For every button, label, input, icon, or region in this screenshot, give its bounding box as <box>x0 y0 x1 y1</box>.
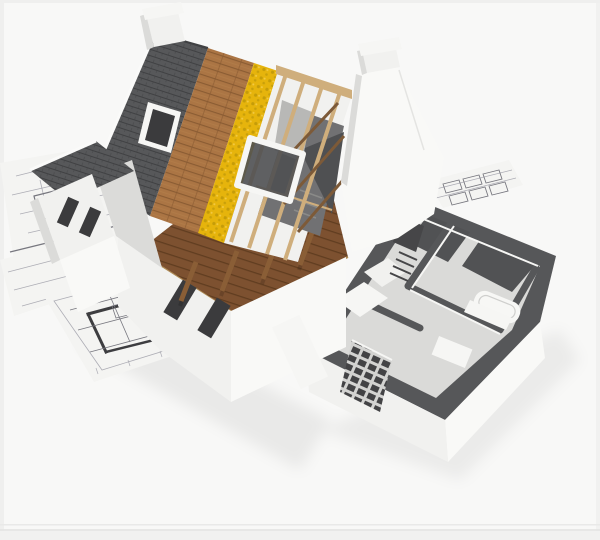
bottom-frame-line-2 <box>0 529 600 531</box>
bottom-frame-line-1 <box>0 524 600 526</box>
house-cutaway-render <box>0 0 600 540</box>
top-edge-tint <box>0 0 600 3</box>
right-edge-tint <box>596 0 600 540</box>
bottom-frame-band <box>0 531 600 540</box>
photo-frame <box>0 0 600 540</box>
